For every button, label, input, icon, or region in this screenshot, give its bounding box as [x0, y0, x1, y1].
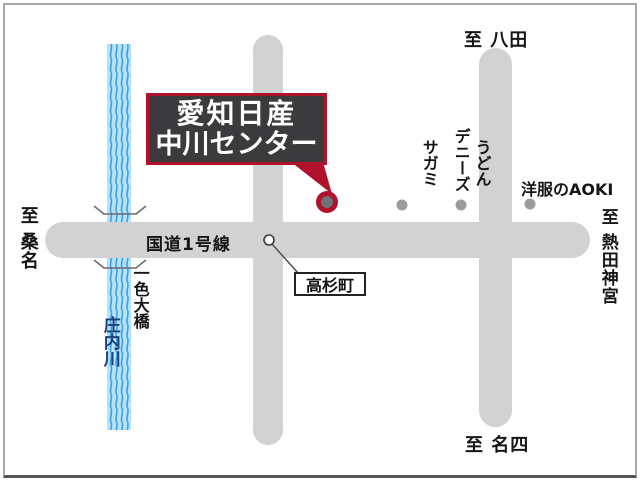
main-label-line1: 愛知日産: [176, 98, 296, 129]
poi-dot-dennys: [456, 200, 467, 211]
poi-sagami-line: サガミ: [420, 139, 438, 187]
shonai-river-label: 庄内川: [100, 316, 119, 367]
main-label-pointer: [291, 162, 332, 194]
map-canvas: 愛知日産 中川センター 至 八田 至 桑名 至 熱田神宮 至 名四 国道1号線 …: [0, 0, 640, 480]
poi-udon-line: うどん: [473, 139, 491, 187]
dest-label-meishi: 至 名四: [465, 431, 529, 457]
poi-dot-udon-sagami: [397, 200, 408, 211]
route1-label: 国道1号線: [146, 230, 231, 255]
location-marker-center: [321, 196, 333, 208]
main-label-line2: 中川センター: [156, 129, 318, 160]
dest-label-atsuta-jingu: 至 熱田神宮: [598, 208, 617, 305]
dest-label-hatta: 至 八田: [464, 26, 528, 52]
intersection-circle: [264, 235, 274, 245]
takasugi-leader-line: [272, 244, 298, 273]
bridge-mark-north: [94, 206, 146, 214]
poi-label-dennys: デニーズ: [452, 128, 470, 192]
map-decorations: [0, 0, 640, 480]
dest-label-kuwana: 至 桑名: [18, 206, 38, 270]
takasugi-cho-box: 高杉町: [294, 272, 366, 296]
poi-label-aoki: 洋服のAOKI: [521, 176, 613, 200]
isshiki-bridge-label: 一色大橋: [131, 265, 149, 329]
main-label-box: 愛知日産 中川センター: [146, 93, 327, 165]
poi-dot-aoki: [525, 199, 536, 210]
takasugi-cho-label: 高杉町: [306, 272, 354, 296]
